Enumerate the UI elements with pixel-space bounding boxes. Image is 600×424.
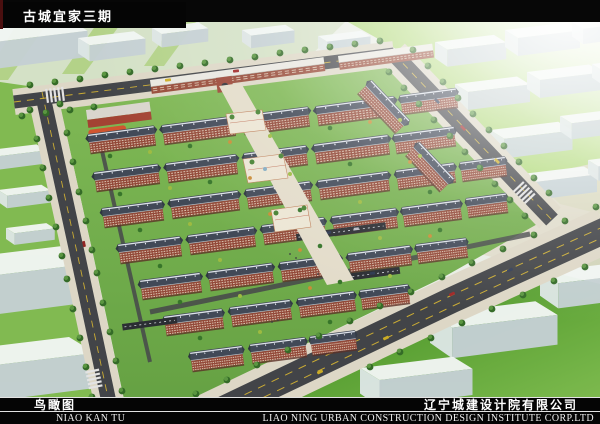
haze-overlay [0, 22, 600, 398]
sheet-edge-accent [0, 0, 3, 29]
project-title: 古城宜家三期 [3, 6, 113, 25]
drawing-name-pinyin: NIAO KAN TU [0, 413, 125, 424]
footer-title-bar: 鸟瞰图 辽宁城建设计院有限公司 NIAO KAN TU LIAO NING UR… [0, 397, 600, 424]
drawing-name-cn: 鸟瞰图 [0, 396, 76, 413]
drawing-sheet: 古城宜家三期 [0, 0, 600, 424]
footer-row-english: NIAO KAN TU LIAO NING URBAN CONSTRUCTION… [0, 412, 600, 424]
company-name-en: LIAO NING URBAN CONSTRUCTION DESIGN INST… [262, 413, 600, 424]
title-block: 古城宜家三期 [3, 2, 186, 28]
footer-row-chinese: 鸟瞰图 辽宁城建设计院有限公司 [0, 398, 600, 412]
company-name-cn: 辽宁城建设计院有限公司 [424, 396, 600, 413]
birdseye-rendering [0, 22, 600, 398]
